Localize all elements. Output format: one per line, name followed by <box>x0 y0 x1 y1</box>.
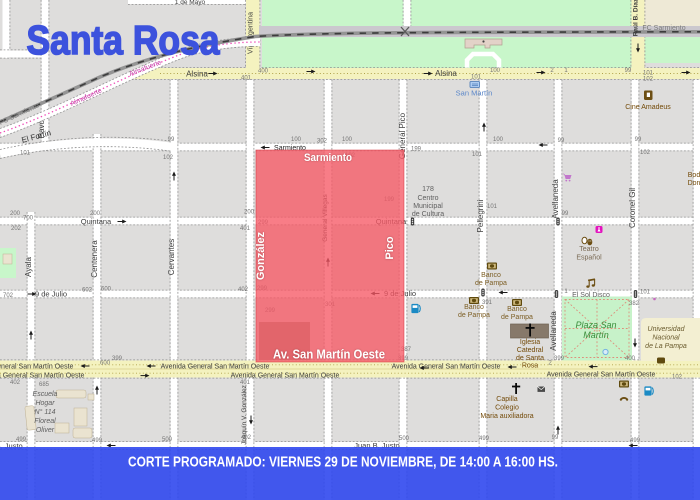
svg-text:399: 399 <box>112 356 123 362</box>
svg-text:100: 100 <box>342 137 353 143</box>
svg-text:Maria auxiliadora: Maria auxiliadora <box>480 413 533 420</box>
svg-text:Martín: Martín <box>583 330 609 340</box>
svg-text:Avenida General San Martín Oes: Avenida General San Martín Oeste <box>392 364 501 371</box>
svg-text:Hogar: Hogar <box>35 400 55 407</box>
svg-text:Plaza San: Plaza San <box>575 320 616 330</box>
svg-text:Quintana: Quintana <box>81 217 112 226</box>
svg-text:401: 401 <box>241 76 252 82</box>
svg-text:de Pampa: de Pampa <box>458 312 490 319</box>
svg-text:400: 400 <box>625 356 636 362</box>
svg-text:101: 101 <box>640 290 651 296</box>
svg-text:1 de Mayo: 1 de Mayo <box>175 0 206 6</box>
svg-text:102: 102 <box>640 150 651 156</box>
svg-text:200: 200 <box>10 211 21 217</box>
svg-text:178: 178 <box>422 186 434 193</box>
svg-text:de La Pampa: de La Pampa <box>645 343 687 350</box>
svg-text:Rosa: Rosa <box>522 363 538 370</box>
svg-text:102: 102 <box>643 77 654 83</box>
svg-text:Municipal: Municipal <box>413 203 443 210</box>
svg-text:CORTE PROGRAMADO: VIERNES 29 D: CORTE PROGRAMADO: VIERNES 29 DE NOVIEMBR… <box>128 454 558 471</box>
svg-text:102: 102 <box>163 155 174 161</box>
svg-text:Avenida General San Martín Oes: Avenida General San Martín Oeste <box>161 363 270 370</box>
svg-text:700: 700 <box>23 216 34 222</box>
svg-text:El Sol Disco: El Sol Disco <box>572 292 610 299</box>
svg-text:99: 99 <box>558 138 565 144</box>
svg-text:100: 100 <box>493 137 504 143</box>
svg-text:FC Sarmiento: FC Sarmiento <box>642 25 685 32</box>
svg-text:101: 101 <box>471 75 482 81</box>
svg-text:600: 600 <box>101 287 112 293</box>
svg-text:Floreal: Floreal <box>34 418 56 425</box>
svg-text:González: González <box>255 231 267 280</box>
svg-text:Alsina: Alsina <box>435 69 457 78</box>
svg-text:Banco: Banco <box>481 272 501 279</box>
svg-text:399: 399 <box>554 356 565 362</box>
svg-text:Iglesia: Iglesia <box>520 339 540 346</box>
svg-text:de Pampa: de Pampa <box>501 314 533 321</box>
svg-text:Avenida General San Martín Oes: Avenida General San Martín Oeste <box>547 372 656 379</box>
svg-text:101: 101 <box>487 204 498 210</box>
svg-text:Avellaneda: Avellaneda <box>551 179 560 219</box>
svg-text:200: 200 <box>90 211 101 217</box>
svg-text:199: 199 <box>411 147 422 153</box>
svg-text:Avellaneda: Avellaneda <box>549 311 558 351</box>
svg-text:N° 114: N° 114 <box>35 408 56 416</box>
svg-text:499: 499 <box>92 438 103 444</box>
svg-text:402: 402 <box>10 380 21 386</box>
svg-text:500: 500 <box>399 436 410 442</box>
svg-text:Bod: Bod <box>688 172 700 179</box>
svg-text:99: 99 <box>562 211 569 217</box>
svg-text:99: 99 <box>168 137 175 143</box>
svg-text:Cine Amadeus: Cine Amadeus <box>625 104 671 111</box>
svg-text:401: 401 <box>240 226 251 232</box>
svg-text:602: 602 <box>82 288 93 294</box>
svg-text:Catedral: Catedral <box>517 347 544 354</box>
svg-text:102: 102 <box>672 375 683 381</box>
svg-text:Raúl B. Díaz: Raúl B. Díaz <box>633 0 640 36</box>
svg-text:Sarmiento: Sarmiento <box>304 152 352 164</box>
svg-text:Colegio: Colegio <box>495 405 519 412</box>
svg-text:9 de Julio: 9 de Julio <box>35 290 67 299</box>
svg-text:Vía Argentina: Vía Argentina <box>248 12 255 54</box>
svg-text:500: 500 <box>162 437 173 443</box>
svg-text:Escuela: Escuela <box>33 391 58 398</box>
svg-text:402: 402 <box>238 287 249 293</box>
svg-text:Español: Español <box>576 255 602 262</box>
svg-text:Banco: Banco <box>507 306 527 313</box>
svg-text:402: 402 <box>241 435 252 441</box>
svg-text:600: 600 <box>100 361 111 367</box>
svg-text:Ayala: Ayala <box>24 257 33 277</box>
svg-text:Nacional: Nacional <box>652 335 680 342</box>
svg-text:100: 100 <box>490 68 501 74</box>
svg-text:Teatro: Teatro <box>579 246 599 253</box>
svg-text:San Martín: San Martín <box>456 89 493 98</box>
svg-text:Cervantes: Cervantes <box>167 239 176 275</box>
svg-text:Alsina: Alsina <box>186 70 208 79</box>
svg-text:de Santa: de Santa <box>516 355 544 362</box>
svg-text:Av. San Martín Oeste: Av. San Martín Oeste <box>273 348 385 362</box>
svg-text:200: 200 <box>244 210 255 216</box>
svg-text:Centenera: Centenera <box>90 240 99 278</box>
svg-text:499: 499 <box>16 437 27 443</box>
svg-text:de Pampa: de Pampa <box>475 280 507 287</box>
svg-text:Universidad: Universidad <box>648 326 686 333</box>
svg-text:de Cultura: de Cultura <box>412 211 444 218</box>
svg-text:400: 400 <box>258 69 269 75</box>
svg-text:302: 302 <box>317 139 328 145</box>
svg-text:Coronel Gil: Coronel Gil <box>628 188 637 228</box>
svg-text:99: 99 <box>552 435 559 441</box>
svg-text:499: 499 <box>630 438 641 444</box>
svg-text:Avenida General San Martín Oes: Avenida General San Martín Oeste <box>0 372 85 379</box>
svg-text:Pico: Pico <box>384 236 396 260</box>
svg-text:Don: Don <box>688 180 700 187</box>
svg-text:Avenida General San Martín Oes: Avenida General San Martín Oeste <box>0 363 74 370</box>
svg-text:100: 100 <box>291 137 302 143</box>
svg-text:499: 499 <box>479 436 490 442</box>
svg-text:202: 202 <box>11 226 22 232</box>
svg-text:99: 99 <box>635 137 642 143</box>
svg-text:Oliver: Oliver <box>36 427 55 434</box>
svg-text:401: 401 <box>240 380 251 386</box>
svg-text:702: 702 <box>3 293 14 299</box>
svg-text:101: 101 <box>472 152 483 158</box>
svg-text:101: 101 <box>20 151 31 157</box>
svg-text:Pellegrini: Pellegrini <box>476 199 485 232</box>
svg-text:391: 391 <box>482 300 493 306</box>
svg-text:Santa Rosa: Santa Rosa <box>27 17 221 63</box>
svg-text:382: 382 <box>629 301 640 307</box>
svg-text:99: 99 <box>625 68 632 74</box>
svg-text:685: 685 <box>39 382 50 388</box>
svg-text:Avenida General San Martín Oes: Avenida General San Martín Oeste <box>231 372 340 379</box>
svg-text:Capilla: Capilla <box>496 396 518 403</box>
svg-text:Centro: Centro <box>417 195 438 202</box>
